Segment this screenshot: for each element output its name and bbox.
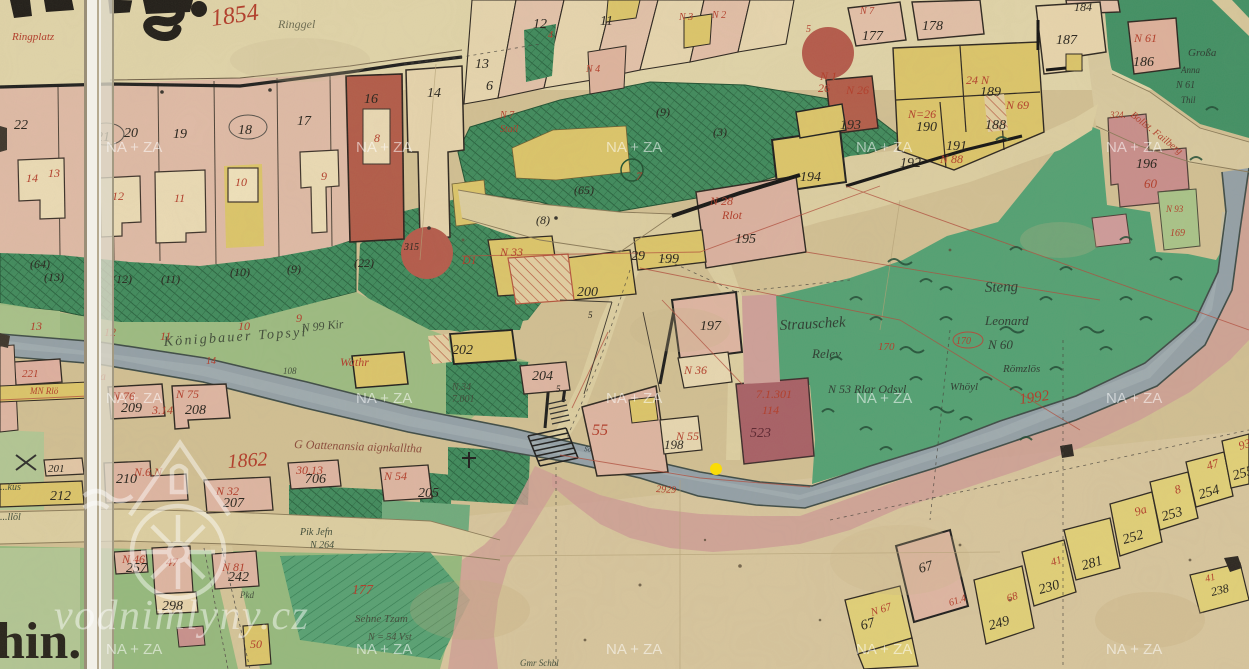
svg-text:NA + ZA: NA + ZA <box>856 390 912 407</box>
svg-text:NA + ZA: NA + ZA <box>856 139 912 156</box>
svg-text:NA + ZA: NA + ZA <box>1106 390 1162 407</box>
svg-text:NA + ZA: NA + ZA <box>1106 139 1162 156</box>
svg-text:NA + ZA: NA + ZA <box>106 139 162 156</box>
svg-text:NA + ZA: NA + ZA <box>606 641 662 658</box>
svg-text:NA + ZA: NA + ZA <box>606 139 662 156</box>
svg-text:vodnimlyny.cz: vodnimlyny.cz <box>54 593 308 639</box>
svg-text:NA + ZA: NA + ZA <box>1106 641 1162 658</box>
svg-text:NA + ZA: NA + ZA <box>856 641 912 658</box>
svg-text:NA + ZA: NA + ZA <box>356 390 412 407</box>
svg-text:NA + ZA: NA + ZA <box>606 390 662 407</box>
svg-text:NA + ZA: NA + ZA <box>356 641 412 658</box>
svg-text:NA + ZA: NA + ZA <box>106 390 162 407</box>
svg-text:NA + ZA: NA + ZA <box>106 641 162 658</box>
svg-text:NA + ZA: NA + ZA <box>356 139 412 156</box>
